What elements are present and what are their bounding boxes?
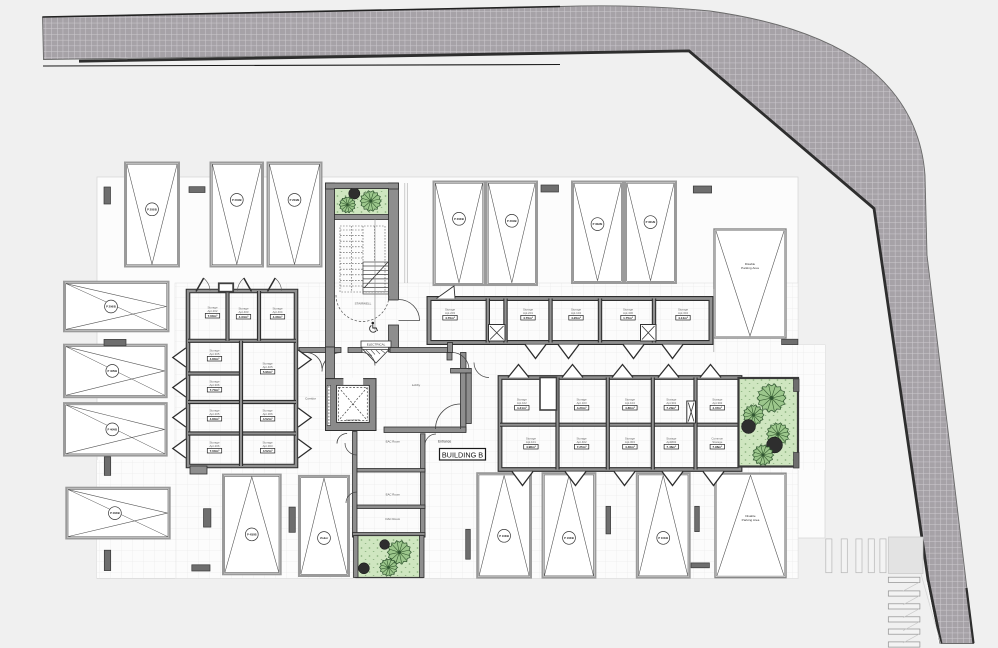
- svg-text:7.00m²: 7.00m²: [208, 314, 218, 318]
- svg-text:Apt.206: Apt.206: [210, 444, 220, 448]
- svg-text:P 202/B: P 202/B: [454, 217, 464, 221]
- svg-text:Apt.104: Apt.104: [571, 311, 581, 315]
- svg-text:1.75m²: 1.75m²: [623, 316, 633, 320]
- svg-text:Lobby: Lobby: [412, 383, 421, 387]
- svg-text:4.80m²: 4.80m²: [210, 417, 220, 421]
- svg-text:DAC Room: DAC Room: [385, 517, 400, 521]
- svg-text:4.34m²: 4.34m²: [239, 315, 249, 319]
- svg-text:P 206/B: P 206/B: [106, 305, 116, 309]
- svg-text:Parking Area: Parking Area: [741, 266, 759, 270]
- svg-text:Apt.201: Apt.201: [523, 311, 533, 315]
- svg-text:BUILDING B: BUILDING B: [442, 450, 483, 459]
- svg-text:P 205/B: P 205/B: [147, 207, 157, 211]
- svg-text:4.70m²: 4.70m²: [523, 316, 533, 320]
- svg-text:Apt.306: Apt.306: [263, 412, 273, 416]
- svg-text:4.20m²: 4.20m²: [577, 406, 587, 410]
- svg-text:4.20m²: 4.20m²: [571, 316, 581, 320]
- svg-text:P 302/B: P 302/B: [593, 222, 603, 226]
- svg-text:Apt.205: Apt.205: [210, 412, 220, 416]
- svg-text:4.98m²: 4.98m²: [526, 445, 536, 449]
- svg-text:P 405/B: P 405/B: [107, 369, 117, 373]
- svg-text:Apt.305: Apt.305: [210, 352, 220, 356]
- svg-text:Apt.302: Apt.302: [712, 401, 722, 405]
- svg-text:4.14m²: 4.14m²: [678, 316, 688, 320]
- svg-text:Parking Area: Parking Area: [742, 518, 760, 522]
- svg-text:7.20m²: 7.20m²: [666, 406, 676, 410]
- svg-text:7.70m²: 7.70m²: [210, 388, 220, 392]
- svg-text:AptM02: AptM02: [666, 440, 676, 444]
- svg-text:4.80m²: 4.80m²: [210, 357, 220, 361]
- svg-text:Apt.301: Apt.301: [666, 401, 676, 405]
- svg-text:4.30m²: 4.30m²: [273, 315, 283, 319]
- svg-text:7.25m²: 7.25m²: [577, 445, 587, 449]
- svg-text:P 102/B: P 102/B: [564, 536, 574, 540]
- svg-text:4.52m²: 4.52m²: [263, 417, 273, 421]
- svg-text:4.07m²: 4.07m²: [712, 406, 722, 410]
- svg-text:Apt.406: Apt.406: [623, 311, 633, 315]
- svg-text:P 304/B: P 304/B: [507, 219, 517, 223]
- svg-text:4.70m²: 4.70m²: [445, 316, 455, 320]
- svg-text:Apt.203: Apt.203: [445, 311, 455, 315]
- svg-text:4.80m²: 4.80m²: [625, 406, 635, 410]
- svg-text:P 402/B: P 402/B: [247, 532, 257, 536]
- svg-text:P 204/B: P 204/B: [232, 198, 242, 202]
- svg-text:P 203/B: P 203/B: [290, 198, 300, 202]
- svg-text:EAC Room: EAC Room: [386, 493, 401, 497]
- svg-text:P 404/B: P 404/B: [107, 427, 117, 431]
- svg-text:P 101/B: P 101/B: [658, 536, 668, 540]
- svg-text:ELEVATOR: ELEVATOR: [346, 418, 360, 422]
- svg-text:EAC Room: EAC Room: [386, 440, 401, 444]
- svg-text:Apt.102: Apt.102: [517, 401, 527, 405]
- svg-text:4.21m²: 4.21m²: [517, 406, 527, 410]
- svg-text:Apt.303: Apt.303: [263, 444, 273, 448]
- svg-text:Storage: Storage: [712, 440, 723, 444]
- svg-text:Apt.104: Apt.104: [625, 401, 635, 405]
- svg-text:Visitor: Visitor: [320, 536, 328, 540]
- svg-text:5.96m²: 5.96m²: [263, 370, 273, 374]
- svg-text:Apt.403: Apt.403: [239, 310, 249, 314]
- svg-text:Apt.404: Apt.404: [273, 310, 283, 314]
- svg-text:P 403/B: P 403/B: [110, 511, 120, 515]
- svg-text:P 301/B: P 301/B: [646, 220, 656, 224]
- svg-text:ELECTRICAL: ELECTRICAL: [367, 343, 386, 347]
- svg-text:Apt.202: Apt.202: [208, 309, 218, 313]
- svg-text:Entrance: Entrance: [438, 440, 451, 444]
- svg-text:4.52m²: 4.52m²: [263, 449, 273, 453]
- svg-text:STAIRWELL: STAIRWELL: [355, 302, 372, 306]
- svg-text:Corridor: Corridor: [305, 397, 316, 401]
- svg-text:P 103/B: P 103/B: [499, 534, 509, 538]
- svg-text:4.46m²: 4.46m²: [625, 445, 635, 449]
- svg-text:Apt.303: Apt.303: [625, 440, 635, 444]
- svg-text:Apt.103: Apt.103: [577, 401, 587, 405]
- svg-text:Apt.402: Apt.402: [577, 440, 587, 444]
- svg-text:7.96m²: 7.96m²: [712, 445, 722, 449]
- svg-text:Apt.306: Apt.306: [210, 383, 220, 387]
- svg-text:Apt.405: Apt.405: [263, 365, 273, 369]
- svg-text:7.46m²: 7.46m²: [666, 445, 676, 449]
- svg-text:7.00m²: 7.00m²: [210, 449, 220, 453]
- svg-text:Apt.304: Apt.304: [678, 311, 688, 315]
- svg-text:Apt.101: Apt.101: [526, 440, 536, 444]
